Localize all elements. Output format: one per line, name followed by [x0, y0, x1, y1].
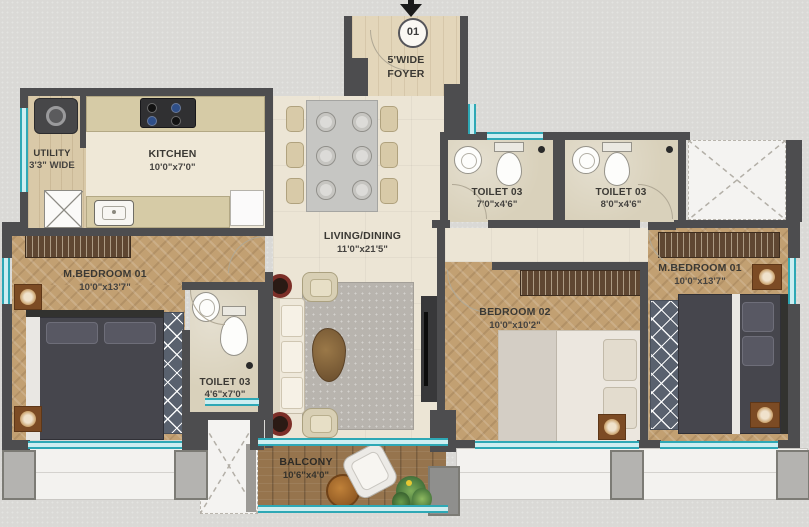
dining-chair — [286, 106, 304, 132]
dining-chair — [286, 178, 304, 204]
nightstand-lamp — [14, 284, 42, 310]
wall — [786, 140, 802, 222]
tv-unit — [421, 296, 437, 402]
drain-icon — [246, 362, 253, 369]
wall — [488, 220, 640, 228]
wall — [80, 96, 86, 148]
pillar — [174, 450, 208, 500]
plate-icon — [352, 180, 372, 200]
floor-plan: 01 — [0, 0, 809, 527]
washbasin-icon — [572, 146, 600, 174]
bedroom-window — [28, 441, 182, 449]
armchair — [302, 408, 338, 438]
stove-icon — [140, 98, 196, 128]
pillar — [776, 450, 809, 500]
pillar — [610, 450, 644, 500]
wall — [20, 88, 273, 96]
balcony-side-wall — [246, 444, 256, 512]
wall — [182, 282, 268, 290]
wall — [265, 96, 273, 230]
wall — [20, 88, 28, 108]
master-bedroom-right-label: M.BEDROOM 01 10'0"x13'7" — [640, 262, 760, 288]
kitchen-sink-icon — [94, 200, 134, 226]
bed-sheet — [732, 294, 740, 434]
wall — [637, 440, 661, 448]
plate-icon — [352, 146, 372, 166]
foyer-label: 5'WIDE FOYER — [362, 54, 450, 81]
dining-chair — [380, 106, 398, 132]
armchair — [302, 272, 338, 302]
utility-label: UTILITY 3'3" WIDE — [18, 148, 86, 173]
toilet-label: TOILET 03 8'0"x4'6" — [564, 186, 678, 211]
washbasin-icon — [454, 146, 482, 174]
corridor-floor — [445, 228, 648, 262]
plate-icon — [316, 112, 336, 132]
toilet-window — [487, 132, 543, 140]
wall — [2, 440, 30, 450]
toilet-tank-icon — [494, 142, 524, 152]
dining-chair — [286, 142, 304, 168]
toilet-label: TOILET 03 4'6"x7'0" — [186, 376, 264, 401]
bed-headboard — [26, 310, 164, 317]
drain-icon — [538, 146, 545, 153]
toilet-tank-icon — [602, 142, 632, 152]
plate-icon — [316, 180, 336, 200]
living-dining-label: LIVING/DINING 11'0"x21'5" — [295, 230, 430, 256]
wall — [437, 262, 445, 270]
bedroom-window — [2, 258, 10, 304]
plate-icon — [352, 112, 372, 132]
wall — [788, 304, 800, 448]
nightstand-lamp — [14, 406, 42, 432]
wall — [444, 84, 468, 136]
bed-headboard — [781, 294, 788, 434]
balcony-rail — [258, 505, 448, 513]
bedroom-window — [788, 258, 796, 304]
wall — [437, 228, 445, 440]
toilet-label: TOILET 03 7'0"x4'6" — [440, 186, 554, 211]
entry-arrow-icon — [400, 4, 422, 17]
wall — [2, 304, 12, 440]
pillow — [742, 302, 774, 332]
balcony-window — [258, 438, 448, 446]
balcony-label: BALCONY 10'6"x4'0" — [268, 456, 344, 482]
drain-icon — [666, 146, 673, 153]
bedroom-window — [660, 441, 778, 449]
wall — [440, 132, 448, 228]
foyer-window — [468, 104, 476, 134]
wall — [2, 222, 20, 236]
wall — [2, 236, 12, 258]
utility-shaft — [44, 190, 82, 228]
kitchen-label: KITCHEN 10'0"x7'0" — [115, 148, 230, 174]
wall — [678, 132, 686, 222]
pillow — [104, 322, 156, 344]
toilet-tank-icon — [222, 306, 246, 316]
plate-icon — [316, 146, 336, 166]
main-door-number: 01 — [398, 18, 428, 48]
wall — [648, 222, 676, 230]
wall — [182, 412, 268, 420]
wall — [788, 222, 800, 258]
wall — [182, 418, 208, 450]
pillow — [742, 336, 774, 366]
toilet-bowl-icon — [604, 152, 630, 186]
nightstand-lamp — [598, 414, 626, 440]
wall — [543, 132, 690, 140]
duct-cross-icon — [688, 140, 786, 220]
sofa — [271, 298, 305, 414]
washing-machine-icon — [34, 98, 78, 134]
wall — [674, 220, 788, 228]
bedroom-window — [475, 441, 639, 449]
dining-chair — [380, 178, 398, 204]
toilet-bowl-icon — [496, 152, 522, 186]
wardrobe — [520, 270, 646, 296]
nightstand-lamp — [750, 402, 780, 428]
wall — [20, 228, 273, 236]
dining-chair — [380, 142, 398, 168]
wall — [432, 220, 450, 228]
wall — [778, 440, 800, 448]
wall — [492, 262, 640, 270]
wall — [182, 330, 190, 418]
pillar — [2, 450, 36, 500]
pillow — [46, 322, 98, 344]
fridge-icon — [230, 190, 264, 226]
bedroom-02-label: BEDROOM 02 10'0"x10'2" — [445, 306, 585, 332]
master-bedroom-left-label: M.BEDROOM 01 10'0"x13'7" — [40, 268, 170, 294]
wall — [640, 262, 648, 448]
